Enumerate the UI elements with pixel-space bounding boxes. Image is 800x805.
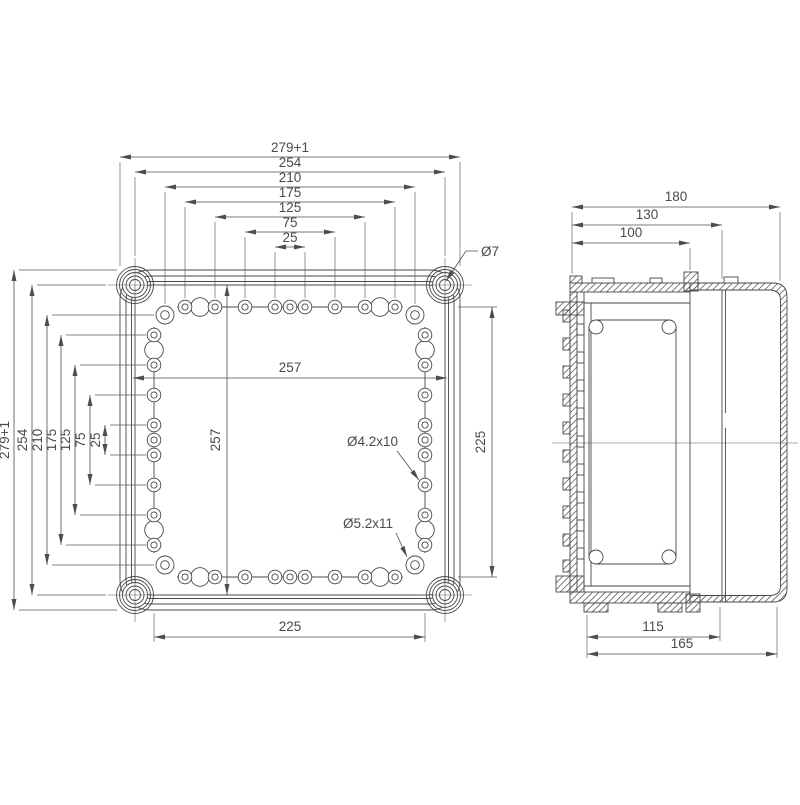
- dim-side-165-label: 165: [671, 636, 694, 651]
- dim-top-254-label: 254: [279, 155, 302, 170]
- dim-side-100-label: 100: [620, 225, 643, 240]
- drawing-canvas: 279+1 254 210 175 125 75 25 279+1 254: [0, 0, 800, 800]
- dim-left-25-label: 25: [88, 432, 103, 447]
- dim-left-75-label: 75: [73, 432, 88, 447]
- dim-bottom-225-label: 225: [279, 619, 302, 634]
- dim-side-180-label: 180: [665, 189, 688, 204]
- dim-top-175-label: 175: [279, 185, 302, 200]
- front-top-dimension-chain: 279+1 254 210 175 125 75 25: [120, 140, 460, 304]
- front-view: 279+1 254 210 175 125 75 25 279+1 254: [0, 140, 499, 642]
- dim-top-25-label: 25: [282, 230, 297, 245]
- dim-right-225-label: 225: [473, 431, 488, 454]
- dim-left-175-label: 175: [44, 429, 59, 452]
- dim-inner-height-label: 257: [208, 429, 223, 452]
- side-top-dimensions: 180 130 100: [572, 189, 780, 281]
- dim-side-115-label: 115: [642, 619, 664, 634]
- dim-left-125-label: 125: [58, 429, 73, 452]
- dim-left-overall-label: 279+1: [0, 421, 12, 459]
- dim-inner-width-label: 257: [279, 360, 302, 375]
- dim-top-overall-label: 279+1: [271, 140, 309, 155]
- callout-corner-hole-label: Ø7: [481, 244, 499, 259]
- callout-small-hole-label: Ø4.2x10: [347, 434, 398, 449]
- dim-left-210-label: 210: [30, 429, 45, 452]
- dim-top-75-label: 75: [282, 215, 297, 230]
- callout-large-hole-label: Ø5.2x11: [343, 516, 393, 531]
- side-view: 180 130 100 115 165: [552, 189, 798, 658]
- dim-left-254-label: 254: [15, 428, 30, 451]
- dim-side-130-label: 130: [636, 207, 659, 222]
- dim-top-210-label: 210: [279, 170, 302, 185]
- front-left-dimension-chain: 279+1 254 210 175 125 75 25: [0, 270, 154, 610]
- dim-top-125-label: 125: [279, 200, 302, 215]
- side-body: [552, 272, 798, 612]
- side-bottom-dimensions: 115 165: [587, 607, 777, 658]
- enclosure-technical-drawing: 279+1 254 210 175 125 75 25 279+1 254: [0, 0, 800, 800]
